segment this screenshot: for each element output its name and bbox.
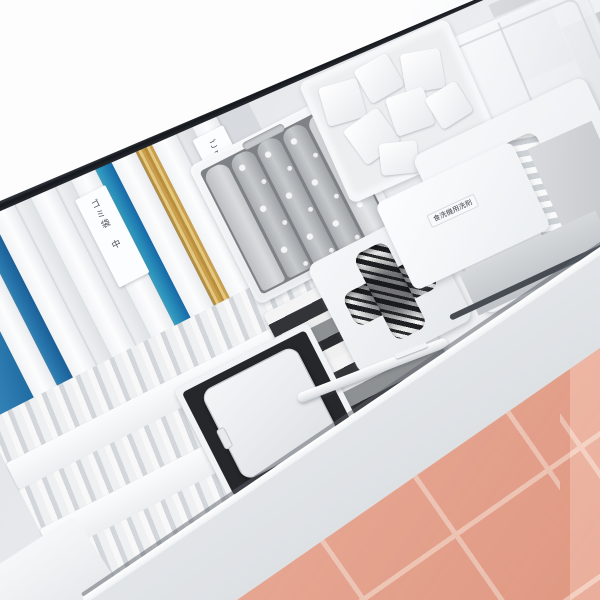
sponge-cube xyxy=(379,140,420,176)
wipes-lid-latch xyxy=(216,426,234,450)
detergent-label: 食洗機用洗剤 xyxy=(426,193,479,228)
drawer-organization-photo: ゴミ袋 中 ごみ袋 小 xyxy=(0,0,600,600)
detergent-label-text: 食洗機用洗剤 xyxy=(432,197,474,224)
